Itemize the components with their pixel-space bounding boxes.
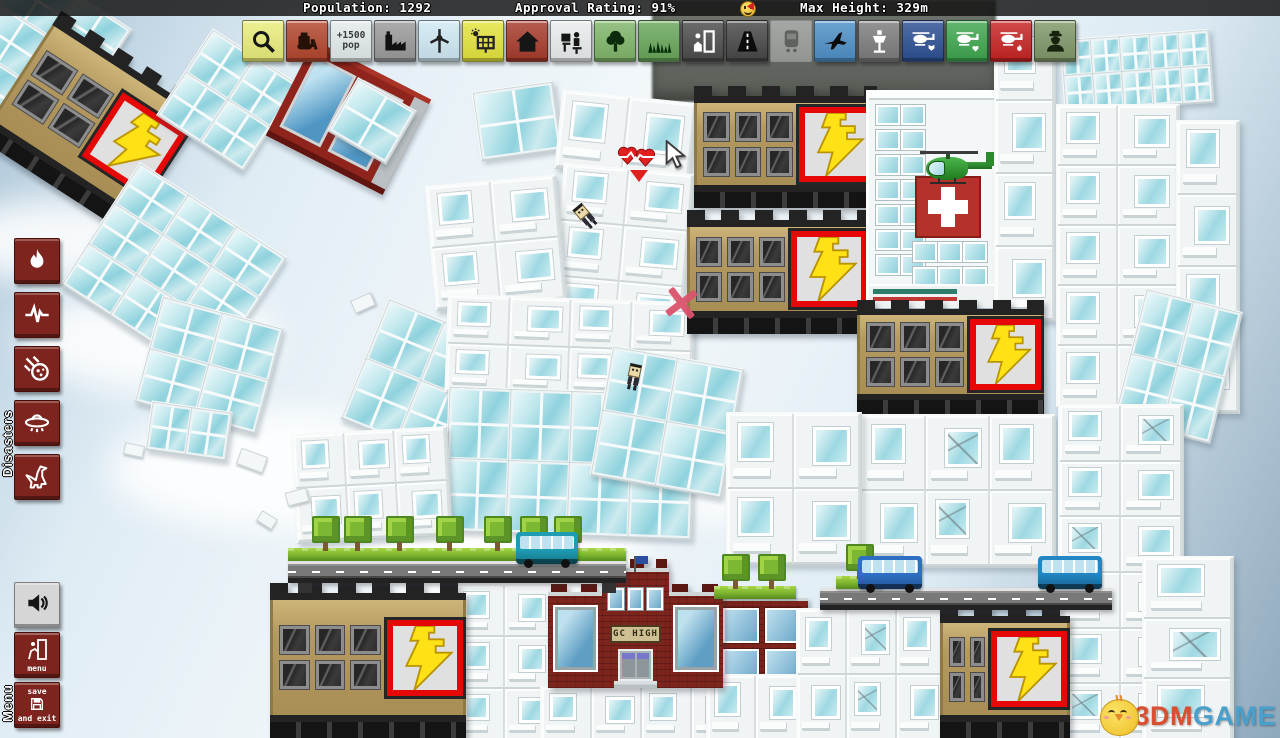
window (1135, 236, 1169, 266)
lightning-bolt-sign (991, 631, 1067, 707)
dark-window (950, 673, 964, 701)
window-cell (344, 431, 397, 487)
roof-crenellation (687, 220, 870, 227)
watermark-3dm: 3DM (1134, 701, 1193, 732)
tree-trunk (769, 580, 774, 589)
dark-window (280, 661, 309, 689)
earthquake-disaster-button[interactable] (14, 292, 60, 338)
watermark: 3DM GAME (1098, 696, 1276, 736)
window-ledge (630, 210, 667, 221)
window (855, 683, 881, 716)
dark-window (867, 358, 894, 386)
population-block-button[interactable]: +1500pop (330, 20, 372, 62)
window (510, 188, 549, 222)
population-value: 1292 (399, 0, 431, 15)
bulldozer-tool-button[interactable] (286, 20, 328, 62)
window-ledge (509, 673, 536, 680)
window (640, 237, 678, 268)
window-cell (1121, 462, 1182, 518)
glass-pane (1120, 35, 1152, 72)
window (1158, 565, 1204, 596)
roof-crenellation (694, 96, 877, 103)
window-ledge (712, 722, 739, 731)
dark-window (901, 323, 928, 351)
window-ledge (563, 147, 601, 161)
lightning-bolt-sign (387, 620, 463, 696)
base-crenellation (940, 715, 1070, 722)
airplane-button[interactable] (814, 20, 856, 62)
high-school[interactable]: GC HIGH (548, 568, 723, 688)
health-hearts-indicator (616, 144, 662, 188)
window (901, 105, 925, 125)
train-icon (778, 28, 805, 55)
window-cell (1178, 122, 1238, 195)
dark-window (736, 113, 761, 141)
hospital[interactable] (866, 90, 998, 308)
window (812, 686, 839, 719)
power-plant[interactable] (270, 583, 466, 738)
power-plant[interactable] (857, 300, 1044, 414)
school-wing (669, 592, 723, 688)
police-helicopter-button[interactable] (902, 20, 944, 62)
window-cell (592, 688, 642, 738)
dinosaur-disaster-button[interactable] (14, 454, 60, 500)
bus-wheel (1046, 584, 1055, 593)
plane-icon (822, 28, 849, 55)
dark-window (704, 113, 729, 141)
road-button[interactable] (726, 20, 768, 62)
window-cell (1058, 226, 1118, 286)
base-crenellation (694, 185, 877, 192)
window-cell (395, 428, 448, 484)
window (813, 502, 850, 540)
window (1069, 468, 1101, 496)
window-ledge (1126, 501, 1160, 509)
window-ledge (512, 379, 546, 387)
window-ledge (1000, 227, 1033, 237)
chick-mascot-icon (1098, 696, 1140, 736)
tree[interactable] (436, 516, 462, 551)
heli-badge-icon (910, 28, 937, 55)
window (1069, 412, 1101, 440)
window-ledge (646, 725, 674, 733)
lightning-bolt-sign (799, 107, 874, 182)
dark-window (316, 661, 345, 689)
jail-button[interactable] (682, 20, 724, 62)
base-crenellation (687, 311, 870, 318)
window-ledge (799, 543, 836, 553)
glass-pane (448, 388, 511, 461)
solar-icon (470, 28, 497, 55)
window (1069, 691, 1101, 719)
window-ledge (509, 725, 536, 732)
window-ledge (505, 283, 542, 295)
medic-helicopter-button[interactable] (946, 20, 988, 62)
window-cell (293, 433, 346, 489)
window-cell (926, 491, 990, 566)
window (1009, 504, 1045, 542)
window (1067, 173, 1098, 203)
dark-window (760, 273, 784, 301)
road-platform[interactable] (288, 561, 626, 583)
school-wing (548, 592, 602, 688)
road-icon (734, 28, 761, 55)
window (1067, 293, 1098, 323)
window (913, 242, 937, 262)
window-ledge (995, 545, 1031, 555)
power-plant[interactable] (940, 606, 1070, 738)
tree-button[interactable] (594, 20, 636, 62)
apartment-tower[interactable] (994, 26, 1056, 322)
window-ledge (1123, 149, 1157, 157)
tree[interactable] (386, 516, 412, 551)
window (876, 255, 900, 275)
heli-fin (986, 152, 994, 166)
dark-window (728, 273, 752, 301)
window-cell (496, 237, 565, 303)
factory-icon (382, 28, 409, 55)
window-cell (798, 610, 847, 675)
window-ledge (1063, 329, 1097, 337)
window-cell (1060, 406, 1121, 462)
window-ledge (1065, 445, 1099, 453)
power-plant[interactable] (694, 86, 877, 208)
heli-heart-icon (954, 28, 981, 55)
approval-value: 91% (651, 0, 675, 15)
dark-window (704, 148, 729, 176)
happy-face-icon (740, 1, 756, 17)
apartment-tower[interactable] (425, 174, 567, 311)
save-label: save (27, 687, 46, 696)
heli-skid (930, 182, 966, 184)
bus-wheel (1085, 584, 1094, 593)
window-ledge (802, 722, 829, 731)
tree-trunk (323, 542, 328, 551)
heli-cock (928, 161, 945, 176)
window (936, 500, 970, 538)
platform-support (298, 583, 312, 593)
window (806, 618, 832, 651)
glass-pane (1149, 33, 1181, 70)
dark-window (867, 323, 894, 351)
dark-window (971, 673, 985, 701)
bus-windows (520, 536, 574, 549)
save-and-exit-button[interactable]: save and exit (14, 682, 60, 728)
window-ledge (350, 469, 379, 478)
tilted-glass-block[interactable] (590, 345, 745, 498)
window (876, 205, 900, 225)
window-cell (491, 177, 560, 243)
window-ledge (625, 266, 662, 277)
bus-windows (862, 560, 918, 573)
school-doors[interactable] (618, 649, 653, 682)
window-cell (1058, 286, 1118, 346)
window-ledge (499, 222, 536, 234)
window (1013, 260, 1045, 297)
window-ledge (1063, 149, 1097, 157)
school-flag (634, 556, 636, 572)
window-cell (556, 221, 625, 282)
tree[interactable] (312, 516, 338, 551)
dark-window (351, 661, 380, 689)
roof-crenellation (940, 616, 1070, 623)
menu-button[interactable]: menu (14, 632, 60, 678)
window (515, 249, 554, 283)
window (527, 307, 562, 332)
turbine-icon (426, 28, 453, 55)
glass-pane (147, 403, 192, 454)
house-button[interactable] (506, 20, 548, 62)
down-arrow (630, 170, 648, 191)
hospital-parapet (869, 90, 995, 100)
window-cell (897, 675, 946, 738)
dark-window (351, 626, 380, 654)
window-ledge (900, 722, 927, 731)
airport-tower-button[interactable] (858, 20, 900, 62)
window (876, 130, 900, 150)
window-ledge (451, 377, 485, 385)
window-ledge (733, 468, 770, 478)
door-exit-icon (25, 638, 49, 664)
window-cell (542, 688, 592, 738)
power-windows (860, 315, 970, 394)
window (1139, 416, 1173, 444)
heli-mast (946, 154, 950, 159)
school-sign: GC HIGH (610, 625, 661, 643)
tree-trunk (733, 580, 738, 589)
heli-flame-icon (998, 28, 1025, 55)
dark-window (728, 238, 752, 266)
window-cell (505, 586, 553, 637)
tree[interactable] (722, 554, 748, 589)
window (606, 697, 634, 723)
window-cell (1121, 406, 1182, 462)
window (1139, 527, 1173, 555)
window-ledge (400, 466, 429, 475)
office-button[interactable] (550, 20, 592, 62)
apartment-block[interactable] (726, 412, 862, 566)
power-plant-body (694, 103, 877, 185)
zoom-tool-button[interactable] (242, 20, 284, 62)
window-cell (862, 416, 926, 491)
window-cell (798, 675, 847, 738)
dark-window (280, 626, 309, 654)
fire-disaster-button[interactable] (14, 238, 60, 284)
window-ledge (1000, 81, 1033, 91)
police-officer-button[interactable] (1034, 20, 1076, 62)
speaker-icon (24, 590, 50, 621)
window (412, 491, 442, 519)
window-cell (847, 675, 896, 738)
blue-bus (858, 556, 922, 589)
seismo-icon (23, 301, 51, 329)
window (456, 350, 489, 375)
dark-window (950, 638, 964, 666)
power-windows (943, 623, 991, 715)
tree[interactable] (484, 516, 510, 551)
window (876, 155, 900, 175)
glass-pane (186, 408, 231, 459)
glass-pane (1122, 70, 1154, 107)
window (1195, 207, 1229, 244)
menu-panel-label: Menu (0, 636, 15, 722)
tree-canopy (344, 516, 372, 543)
glass-pane (1181, 66, 1213, 103)
window-cell (1060, 462, 1121, 518)
window-cell (794, 414, 860, 489)
power-plant[interactable] (687, 210, 870, 334)
glass-pane (603, 348, 678, 422)
window (904, 618, 930, 651)
officer-icon (1042, 28, 1069, 55)
window (901, 130, 925, 150)
grass-button[interactable] (638, 20, 680, 62)
power-windows (690, 227, 791, 311)
disasters-panel (14, 238, 60, 500)
window (1000, 425, 1034, 463)
window-ledge (509, 622, 536, 629)
window (872, 425, 906, 463)
window (938, 242, 962, 262)
dark-window (697, 273, 721, 301)
base-crenellation (270, 722, 466, 738)
window-cell (570, 300, 633, 350)
window-ledge (867, 470, 903, 480)
window-ledge (851, 722, 878, 731)
roof-crenellation (694, 86, 877, 96)
person-head (628, 363, 642, 378)
window-ledge (1063, 389, 1097, 397)
game-screen: GC HIGH Population: 1292 Approval Rating… (0, 0, 1280, 738)
window (738, 498, 773, 536)
glass-pane (1091, 37, 1123, 74)
tree[interactable] (758, 554, 784, 589)
door-person-icon (690, 28, 717, 55)
window-cell (509, 298, 572, 348)
tree-icon (602, 28, 629, 55)
window (568, 228, 604, 259)
glass-pane (474, 83, 560, 159)
window (1135, 176, 1169, 206)
tree-canopy (758, 554, 786, 581)
power-plant-body (857, 315, 1044, 394)
window (1069, 635, 1101, 663)
disasters-panel-label: Disasters (0, 252, 15, 477)
meteor-disaster-button[interactable] (14, 346, 60, 392)
window-ledge (436, 228, 473, 240)
apartment-block[interactable] (796, 608, 948, 738)
tree[interactable] (344, 516, 370, 551)
glass-slab[interactable] (1060, 29, 1215, 113)
bus-wheel (524, 559, 533, 568)
glass-pane (592, 411, 667, 485)
window-cell (505, 637, 553, 688)
ufo-disaster-button[interactable] (14, 400, 60, 446)
solar-panel-button[interactable] (462, 20, 504, 62)
window-ledge (995, 470, 1031, 480)
glass-pane (1152, 68, 1184, 105)
window-ledge (931, 545, 967, 555)
rubble-debris (350, 292, 376, 314)
window (876, 105, 900, 125)
bus-wheel (866, 584, 875, 593)
top-stats-bar: Population: 1292 Approval Rating: 91% Ma… (0, 0, 1280, 16)
window-cell (1058, 346, 1118, 406)
base-crenellation (270, 715, 466, 722)
approval-stat: Approval Rating: 91% (515, 0, 676, 16)
glass-pane (656, 422, 731, 496)
window-cell (990, 491, 1054, 566)
window-ledge (546, 725, 574, 733)
window (1067, 353, 1098, 383)
window (963, 242, 987, 262)
window (738, 423, 773, 461)
window (458, 302, 491, 327)
window-cell (620, 226, 689, 287)
window (359, 440, 389, 468)
fire-helicopter-button[interactable] (990, 20, 1032, 62)
bus-wheel (905, 584, 914, 593)
window (403, 435, 431, 463)
power-windows (273, 600, 387, 715)
window-ledge (1183, 174, 1217, 184)
window-cell (642, 688, 692, 738)
dark-window (736, 148, 761, 176)
road-platform[interactable] (820, 588, 1112, 610)
dino-icon (23, 463, 51, 491)
and-exit-label: and exit (18, 714, 57, 723)
max-height-stat: Max Height: 329m (800, 0, 928, 16)
magnifier-icon (250, 28, 277, 55)
glass-chunk[interactable] (472, 81, 563, 162)
lightning-bolt-sign (970, 319, 1041, 390)
window-cell (1058, 166, 1118, 226)
train-button (770, 20, 812, 62)
window (945, 429, 981, 467)
window (519, 595, 546, 621)
window-cell (1118, 166, 1178, 226)
window (876, 180, 900, 200)
sound-toggle-button[interactable] (14, 582, 60, 628)
tree-trunk (355, 542, 360, 551)
tree-trunk (397, 542, 402, 551)
tree-canopy (386, 516, 414, 543)
window-cell (1118, 106, 1178, 166)
window-ledge (802, 657, 829, 666)
window (1069, 524, 1101, 552)
apartment-block[interactable] (860, 414, 1056, 568)
window (1135, 116, 1169, 146)
control-tower-icon (866, 28, 893, 55)
tree-canopy (436, 516, 464, 543)
window-ledge (1151, 662, 1201, 670)
dark-window (767, 113, 792, 141)
window-cell (1144, 619, 1232, 680)
dark-window (936, 323, 963, 351)
window-cell (996, 101, 1054, 174)
factory-button[interactable] (374, 20, 416, 62)
window (1067, 113, 1098, 143)
window-cell (990, 416, 1054, 491)
wind-turbine-button[interactable] (418, 20, 460, 62)
window (464, 643, 489, 669)
window (723, 608, 759, 643)
ufo-icon (23, 409, 51, 437)
dark-window (760, 238, 784, 266)
max-height-value: 329m (896, 0, 928, 15)
window-ledge (299, 472, 328, 481)
window-cell (427, 182, 496, 248)
